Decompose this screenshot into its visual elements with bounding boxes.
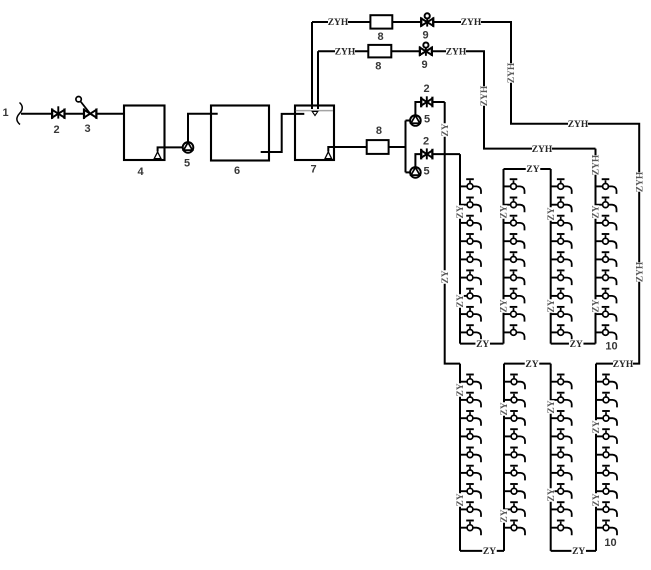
- svg-text:ZY: ZY: [441, 270, 451, 283]
- svg-text:8: 8: [376, 125, 382, 137]
- svg-text:ZY: ZY: [525, 360, 538, 370]
- svg-text:4: 4: [137, 166, 144, 178]
- svg-text:2: 2: [423, 83, 429, 95]
- svg-text:ZYH: ZYH: [592, 154, 602, 175]
- svg-text:ZYH: ZYH: [446, 47, 467, 57]
- svg-text:2: 2: [53, 124, 59, 136]
- svg-text:ZY: ZY: [500, 402, 510, 415]
- svg-text:ZY: ZY: [592, 493, 602, 506]
- svg-text:ZY: ZY: [547, 400, 557, 413]
- svg-text:ZY: ZY: [441, 123, 451, 136]
- svg-text:ZY: ZY: [483, 547, 496, 557]
- svg-text:ZY: ZY: [547, 488, 557, 501]
- svg-text:ZYH: ZYH: [480, 85, 490, 106]
- svg-text:ZY: ZY: [592, 299, 602, 312]
- svg-text:ZY: ZY: [476, 340, 489, 350]
- svg-text:ZY: ZY: [526, 165, 539, 175]
- svg-text:9: 9: [421, 59, 427, 71]
- svg-text:6: 6: [234, 165, 240, 177]
- svg-text:ZY: ZY: [572, 547, 585, 557]
- svg-text:ZY: ZY: [592, 420, 602, 433]
- svg-text:ZY: ZY: [547, 207, 557, 220]
- svg-text:10: 10: [605, 341, 617, 353]
- svg-text:5: 5: [424, 114, 430, 126]
- svg-text:ZY: ZY: [456, 383, 466, 396]
- svg-text:ZYH: ZYH: [613, 360, 634, 370]
- svg-text:5: 5: [184, 158, 190, 170]
- svg-text:3: 3: [84, 123, 90, 135]
- svg-text:5: 5: [423, 166, 429, 178]
- svg-text:ZY: ZY: [592, 205, 602, 218]
- svg-text:8: 8: [377, 31, 383, 43]
- svg-text:10: 10: [604, 537, 616, 549]
- svg-text:ZY: ZY: [500, 299, 510, 312]
- svg-text:1: 1: [2, 107, 8, 119]
- svg-text:ZY: ZY: [500, 509, 510, 522]
- svg-text:7: 7: [310, 164, 316, 176]
- svg-text:ZYH: ZYH: [507, 62, 517, 83]
- svg-text:ZY: ZY: [456, 205, 466, 218]
- svg-text:ZYH: ZYH: [532, 145, 553, 155]
- svg-text:ZYH: ZYH: [635, 171, 645, 192]
- svg-text:ZYH: ZYH: [635, 261, 645, 282]
- svg-text:8: 8: [375, 61, 381, 73]
- svg-text:ZY: ZY: [456, 294, 466, 307]
- svg-text:2: 2: [423, 136, 429, 148]
- svg-text:9: 9: [422, 30, 428, 42]
- svg-text:ZY: ZY: [500, 205, 510, 218]
- svg-text:ZYH: ZYH: [328, 18, 349, 28]
- svg-text:ZYH: ZYH: [568, 120, 589, 130]
- svg-text:ZY: ZY: [570, 340, 583, 350]
- svg-text:ZYH: ZYH: [461, 18, 482, 28]
- svg-text:ZYH: ZYH: [335, 47, 356, 57]
- svg-text:ZY: ZY: [547, 299, 557, 312]
- svg-text:ZY: ZY: [456, 493, 466, 506]
